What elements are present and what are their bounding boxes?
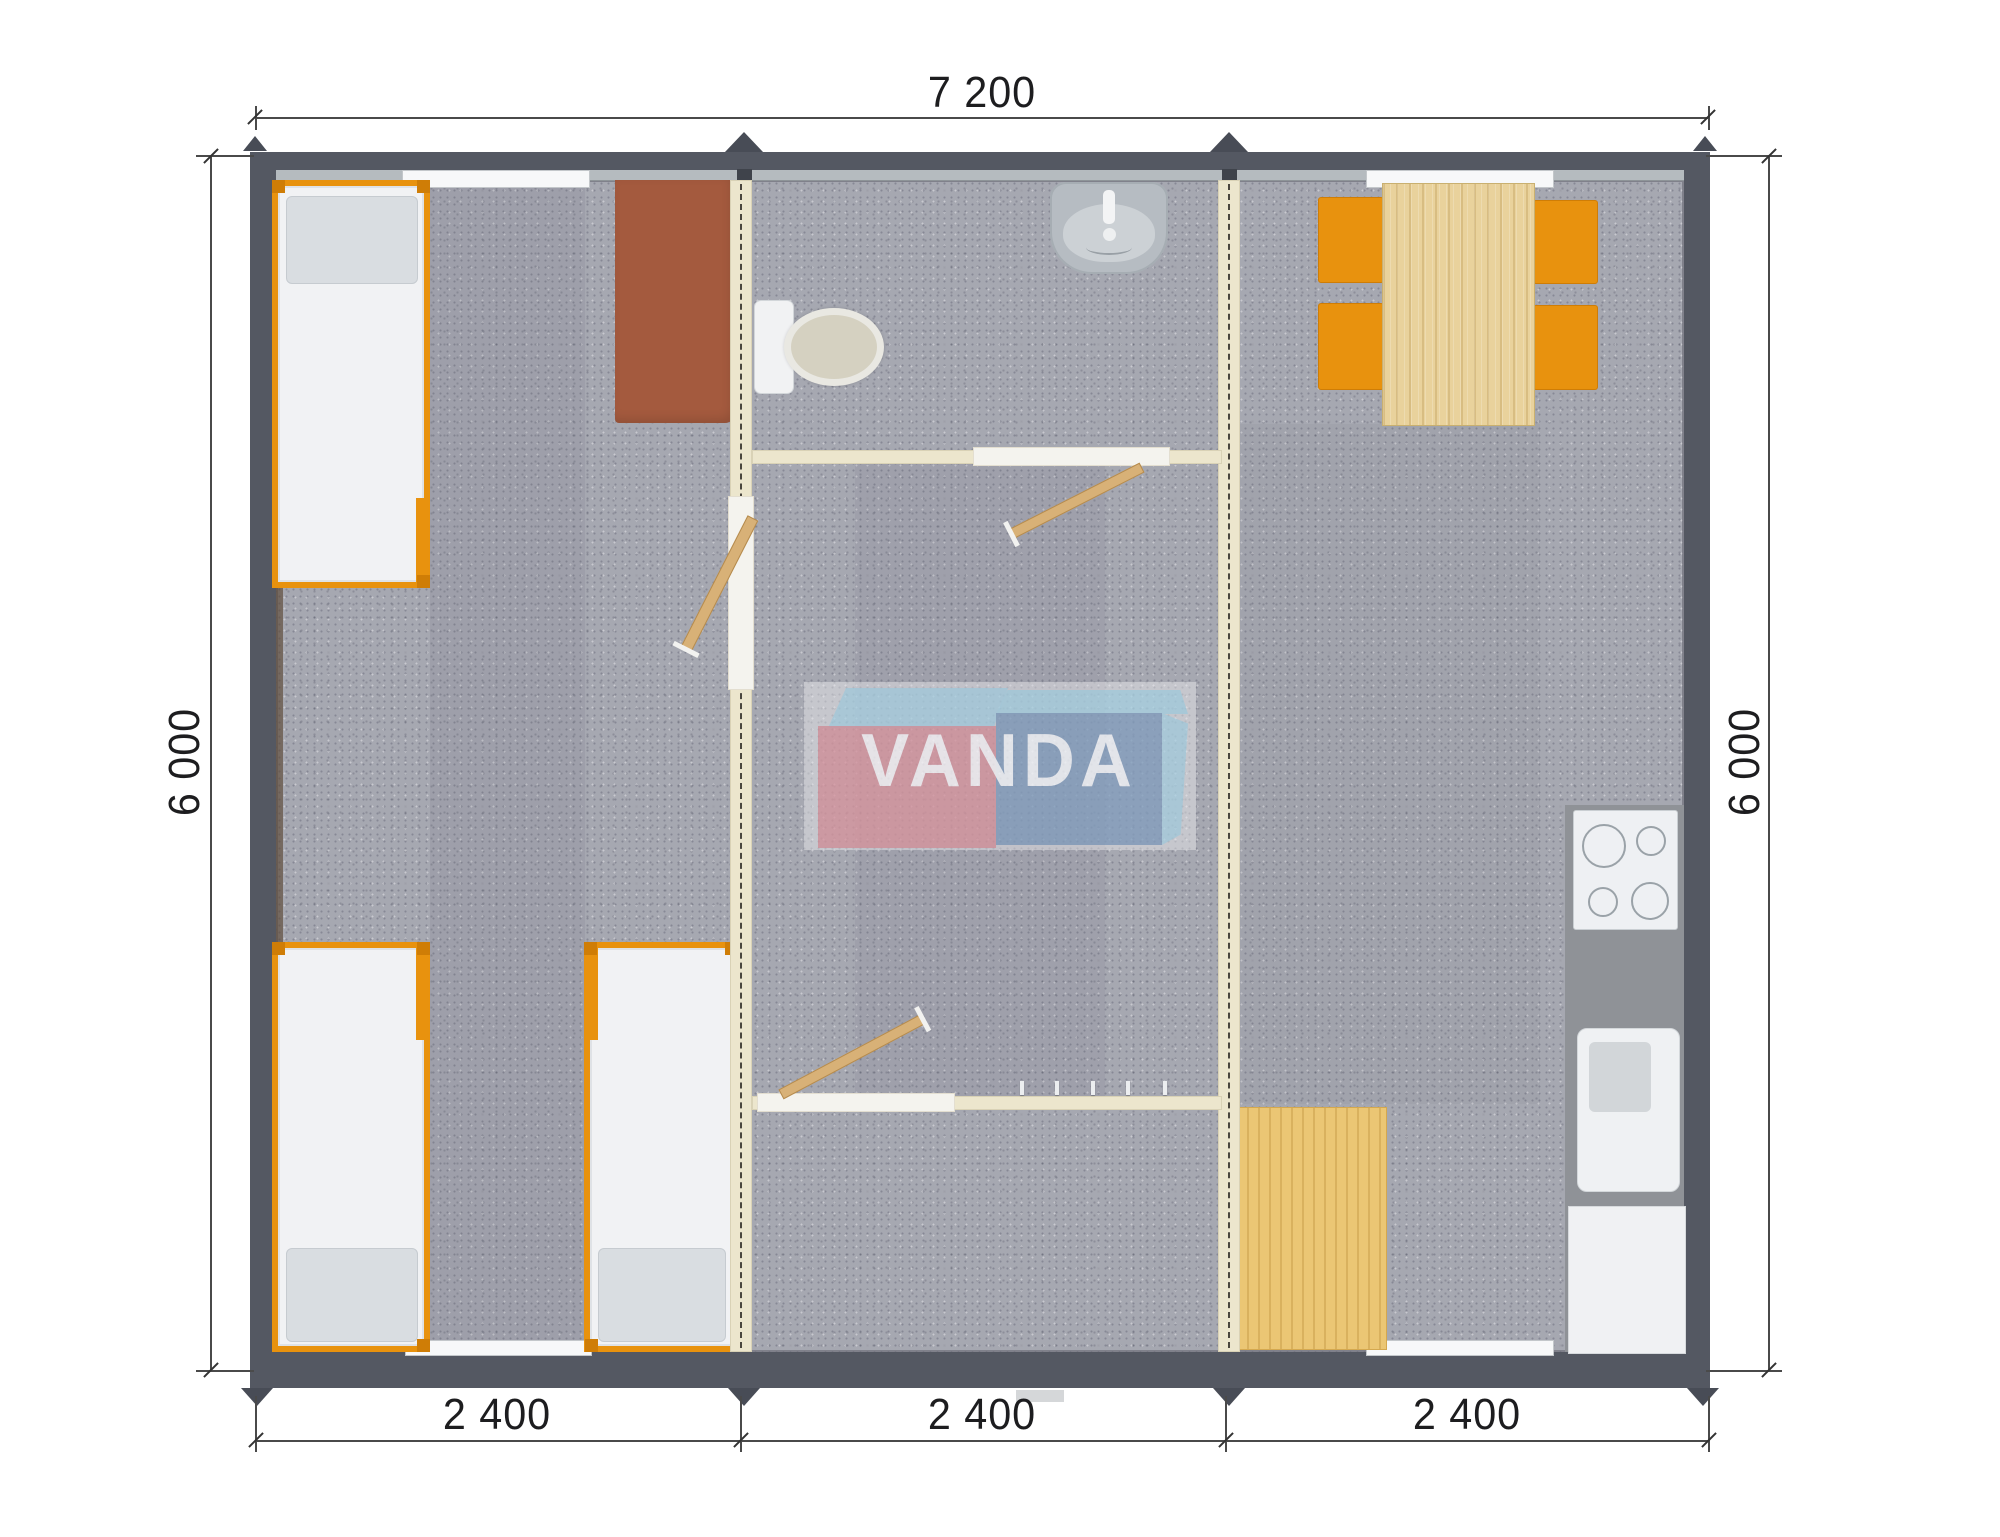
kitchen-sink-basin: [1589, 1042, 1651, 1112]
height-label-right: 6 000: [1725, 682, 1765, 842]
dimension-extension: [740, 1396, 742, 1452]
bed-side-rail: [585, 948, 598, 1040]
bed-side-rail: [416, 948, 429, 1040]
coat-hook: [1091, 1081, 1095, 1095]
coat-hook: [1055, 1081, 1059, 1095]
base-joint-marker: [1213, 1388, 1245, 1406]
bed-post: [272, 942, 285, 955]
bed-post: [417, 180, 430, 193]
window-top-left: [402, 170, 590, 188]
logo-box-top-face: [996, 690, 1188, 714]
module-width-label-2: 2 400: [907, 1390, 1057, 1440]
floor-plan-canvas: VANDA 7 200 6 000 6 000 2 400 2 400 2 40…: [0, 0, 2000, 1537]
window-bottom-left: [405, 1340, 592, 1356]
partition-wall-right: [1218, 180, 1240, 1352]
coat-hook: [1020, 1081, 1024, 1095]
window-bottom-right: [1366, 1340, 1554, 1356]
base-joint-marker: [1687, 1388, 1719, 1406]
burner-small: [1588, 887, 1618, 917]
burner-small: [1636, 826, 1666, 856]
bed-post: [417, 1339, 430, 1352]
chair: [1318, 303, 1384, 390]
bed-pillow: [598, 1248, 726, 1342]
roof-joint-marker: [243, 136, 267, 151]
dimension-line-bottom: [255, 1440, 1710, 1442]
roof-joint-marker: [725, 132, 763, 152]
bed-post: [272, 180, 285, 193]
bed-side-rail: [416, 498, 429, 584]
base-joint-marker: [241, 1388, 273, 1406]
coat-hook: [1163, 1081, 1167, 1095]
dimension-extension: [196, 1370, 254, 1372]
bed-pillow: [286, 1248, 418, 1342]
logo-brand-text: VANDA: [810, 718, 1188, 803]
burner-large: [1631, 882, 1669, 920]
wash-basin: [1050, 182, 1168, 274]
faucet: [1103, 190, 1115, 224]
dimension-extension: [1225, 1396, 1227, 1452]
bed-pillow: [286, 196, 418, 284]
desk: [615, 180, 735, 423]
overall-width-label: 7 200: [907, 68, 1057, 118]
module-width-label-3: 2 400: [1392, 1390, 1542, 1440]
chair: [1318, 197, 1384, 283]
bed-post: [417, 575, 430, 588]
chair: [1533, 305, 1598, 390]
burner-large: [1582, 824, 1626, 868]
door-opening-bathroom: [973, 447, 1170, 466]
toilet-bowl: [784, 308, 884, 386]
dimension-extension: [1706, 1370, 1782, 1372]
vanda-logo-watermark: VANDA: [810, 686, 1188, 852]
bed-post: [585, 1339, 598, 1352]
kitchen-cabinet: [1568, 1206, 1686, 1354]
roof-joint-marker: [1693, 136, 1717, 151]
floor-mat: [1235, 1107, 1387, 1350]
coat-hook: [1126, 1081, 1130, 1095]
chair: [1533, 200, 1598, 284]
dimension-extension: [1708, 1396, 1710, 1452]
dimension-extension: [255, 1396, 257, 1452]
dimension-extension: [196, 155, 254, 157]
roof-joint-marker: [1210, 132, 1248, 152]
dining-table: [1382, 183, 1535, 426]
height-label-left: 6 000: [165, 682, 205, 842]
partition-wall-left: [730, 180, 752, 1352]
bed-post: [584, 942, 597, 955]
basin-overflow: [1086, 240, 1132, 255]
cooktop: [1573, 810, 1678, 930]
module-width-label-1: 2 400: [422, 1390, 572, 1440]
base-joint-marker: [728, 1388, 760, 1406]
bed-post: [417, 942, 430, 955]
dimension-line-left: [210, 155, 212, 1372]
